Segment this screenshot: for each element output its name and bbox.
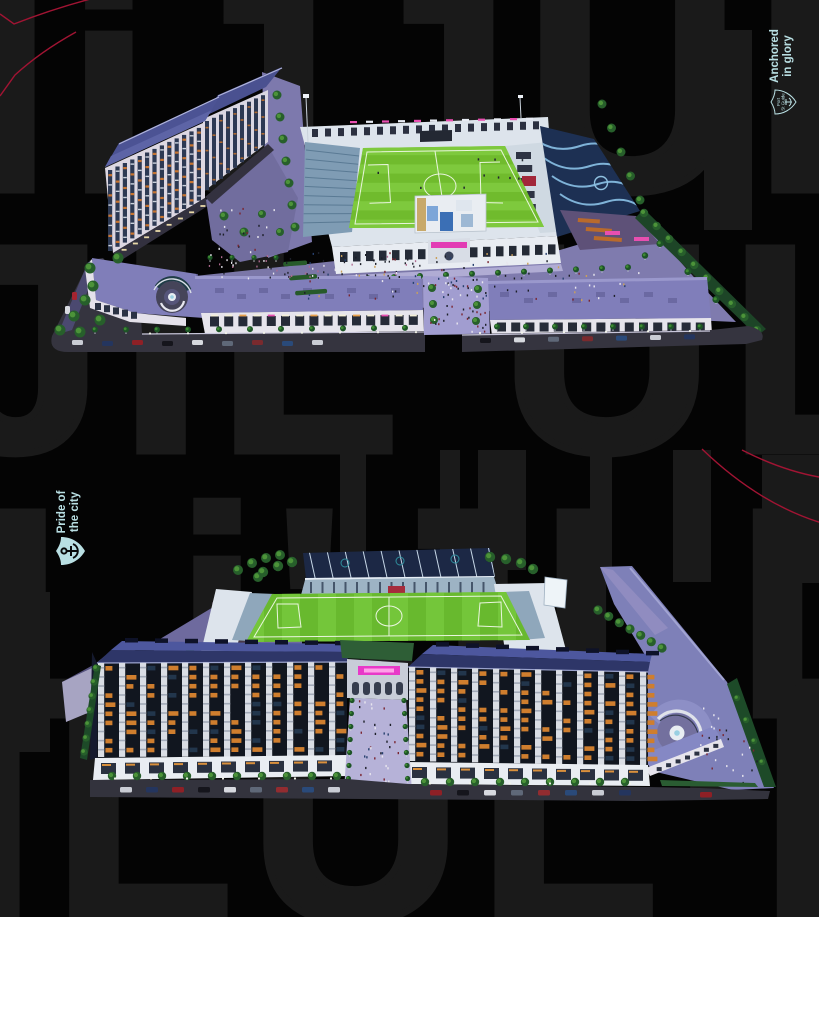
svg-text:St Guide: St Guide [781,93,786,111]
svg-text:in glory: in glory [782,35,794,77]
svg-text:Pride of: Pride of [56,490,68,533]
svg-text:the city: the city [69,491,81,532]
svg-text:Anchored: Anchored [769,29,781,83]
